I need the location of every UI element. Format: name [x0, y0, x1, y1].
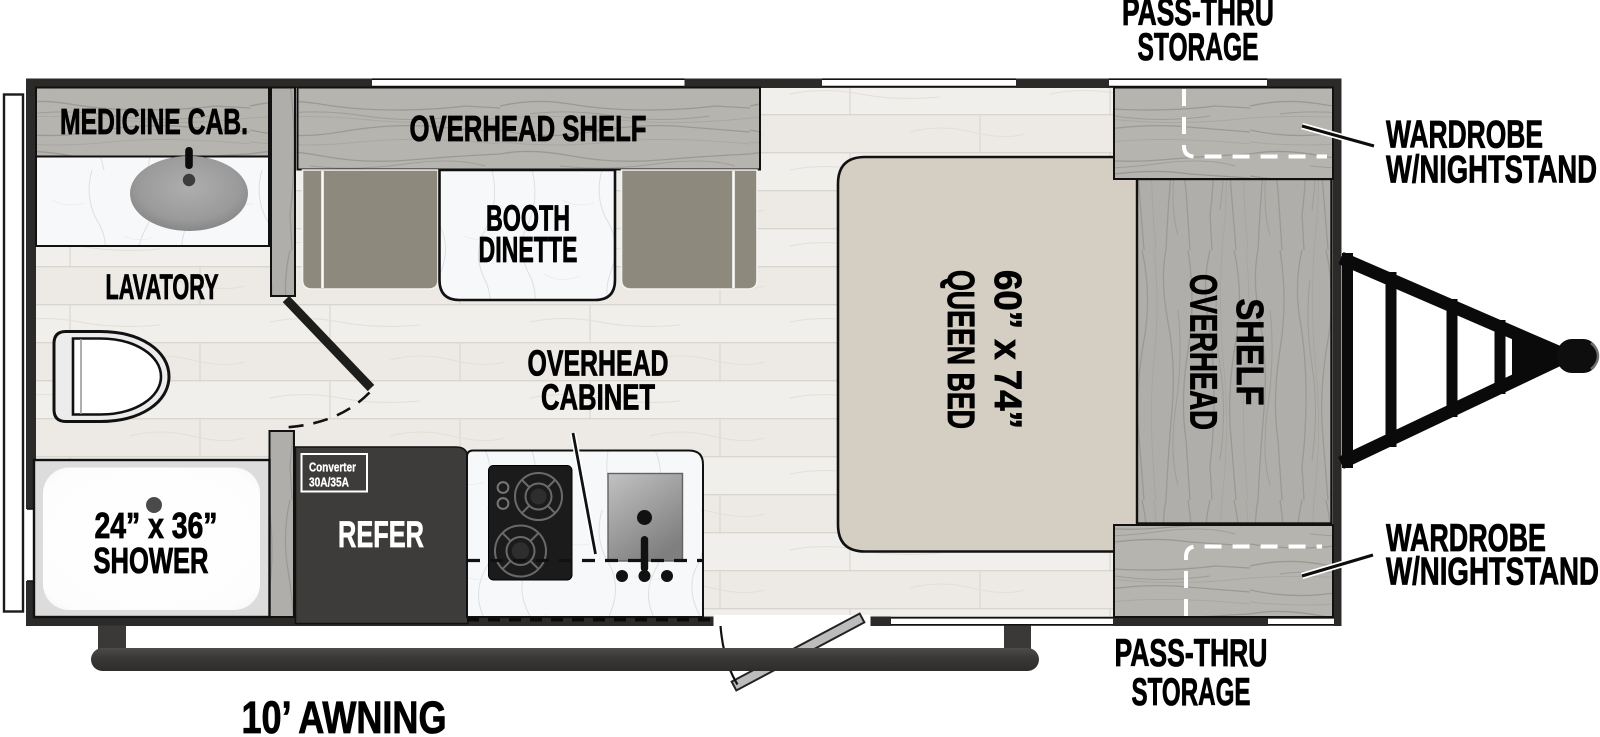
- svg-text:MEDICINE CAB.: MEDICINE CAB.: [60, 101, 248, 142]
- svg-text:CABINET: CABINET: [541, 377, 655, 418]
- svg-text:30A/35A: 30A/35A: [309, 476, 349, 490]
- svg-text:OVERHEAD: OVERHEAD: [1182, 274, 1224, 430]
- svg-text:Converter: Converter: [309, 461, 356, 475]
- svg-text:SHELF: SHELF: [1228, 299, 1270, 406]
- svg-text:STORAGE: STORAGE: [1132, 671, 1251, 714]
- svg-text:STORAGE: STORAGE: [1138, 26, 1259, 69]
- svg-text:REFER: REFER: [338, 514, 424, 555]
- svg-text:W/NIGHTSTAND: W/NIGHTSTAND: [1386, 149, 1597, 192]
- svg-text:QUEEN BED: QUEEN BED: [939, 270, 981, 429]
- svg-text:SHOWER: SHOWER: [94, 540, 209, 581]
- svg-text:10’ AWNING: 10’ AWNING: [242, 692, 447, 737]
- svg-text:PASS-THRU: PASS-THRU: [1115, 632, 1268, 675]
- svg-text:OVERHEAD SHELF: OVERHEAD SHELF: [410, 108, 647, 149]
- svg-text:DINETTE: DINETTE: [479, 229, 578, 270]
- svg-text:W/NIGHTSTAND: W/NIGHTSTAND: [1386, 551, 1599, 594]
- svg-text:LAVATORY: LAVATORY: [106, 268, 219, 307]
- svg-text:60” x 74”: 60” x 74”: [986, 270, 1028, 429]
